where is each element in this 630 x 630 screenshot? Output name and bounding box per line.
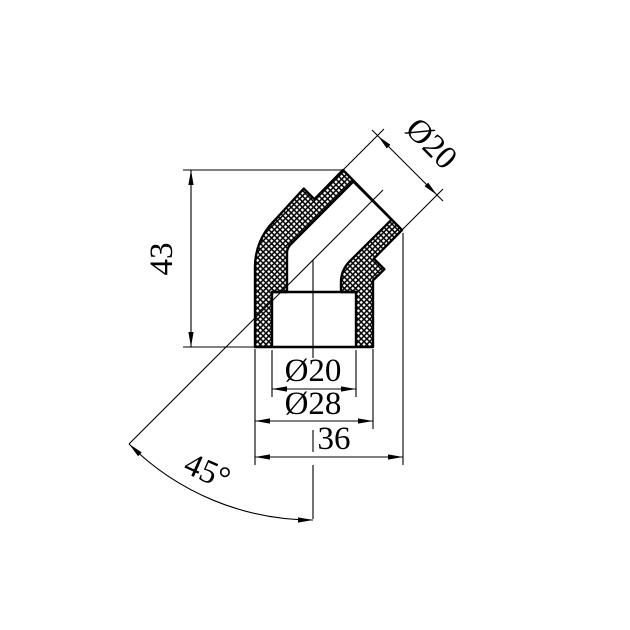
fitting-body: [255, 170, 402, 347]
arrow-width-right: [388, 454, 403, 459]
dimension-arrows: [129, 136, 437, 523]
dimension-lines: [129, 130, 443, 520]
arrow-angle-right: [298, 517, 313, 522]
arrow-width-left: [255, 454, 270, 459]
elbow-fitting-drawing-svg: 43 Ø20 Ø20 Ø28 36 45°: [0, 0, 630, 630]
arrow-socket-od-right: [358, 418, 373, 423]
dim-width-label: 36: [318, 421, 351, 457]
dimension-labels: 43 Ø20 Ø20 Ø28 36 45°: [144, 111, 464, 498]
dim-socket-od-label: Ø28: [285, 386, 342, 422]
arrow-branch-od-lower: [425, 183, 437, 195]
arrow-height-bottom: [188, 332, 193, 347]
fitting-section-walls: [255, 170, 402, 347]
arrow-socket-od-left: [255, 418, 270, 423]
arrow-branch-od-upper: [378, 136, 390, 148]
dim-bore-label: Ø20: [285, 353, 342, 389]
branch-axis-centerline: [129, 190, 383, 444]
arrow-bore-right: [341, 386, 356, 391]
dim-height-label: 43: [144, 243, 180, 276]
centerlines: [129, 190, 383, 519]
arrow-height-top: [188, 170, 193, 185]
technical-drawing-canvas: 43 Ø20 Ø20 Ø28 36 45°: [0, 0, 630, 630]
arrow-angle-upper: [129, 444, 142, 456]
dim-angle-label: 45°: [179, 446, 236, 498]
dim-branch-od-label: Ø20: [398, 111, 464, 177]
